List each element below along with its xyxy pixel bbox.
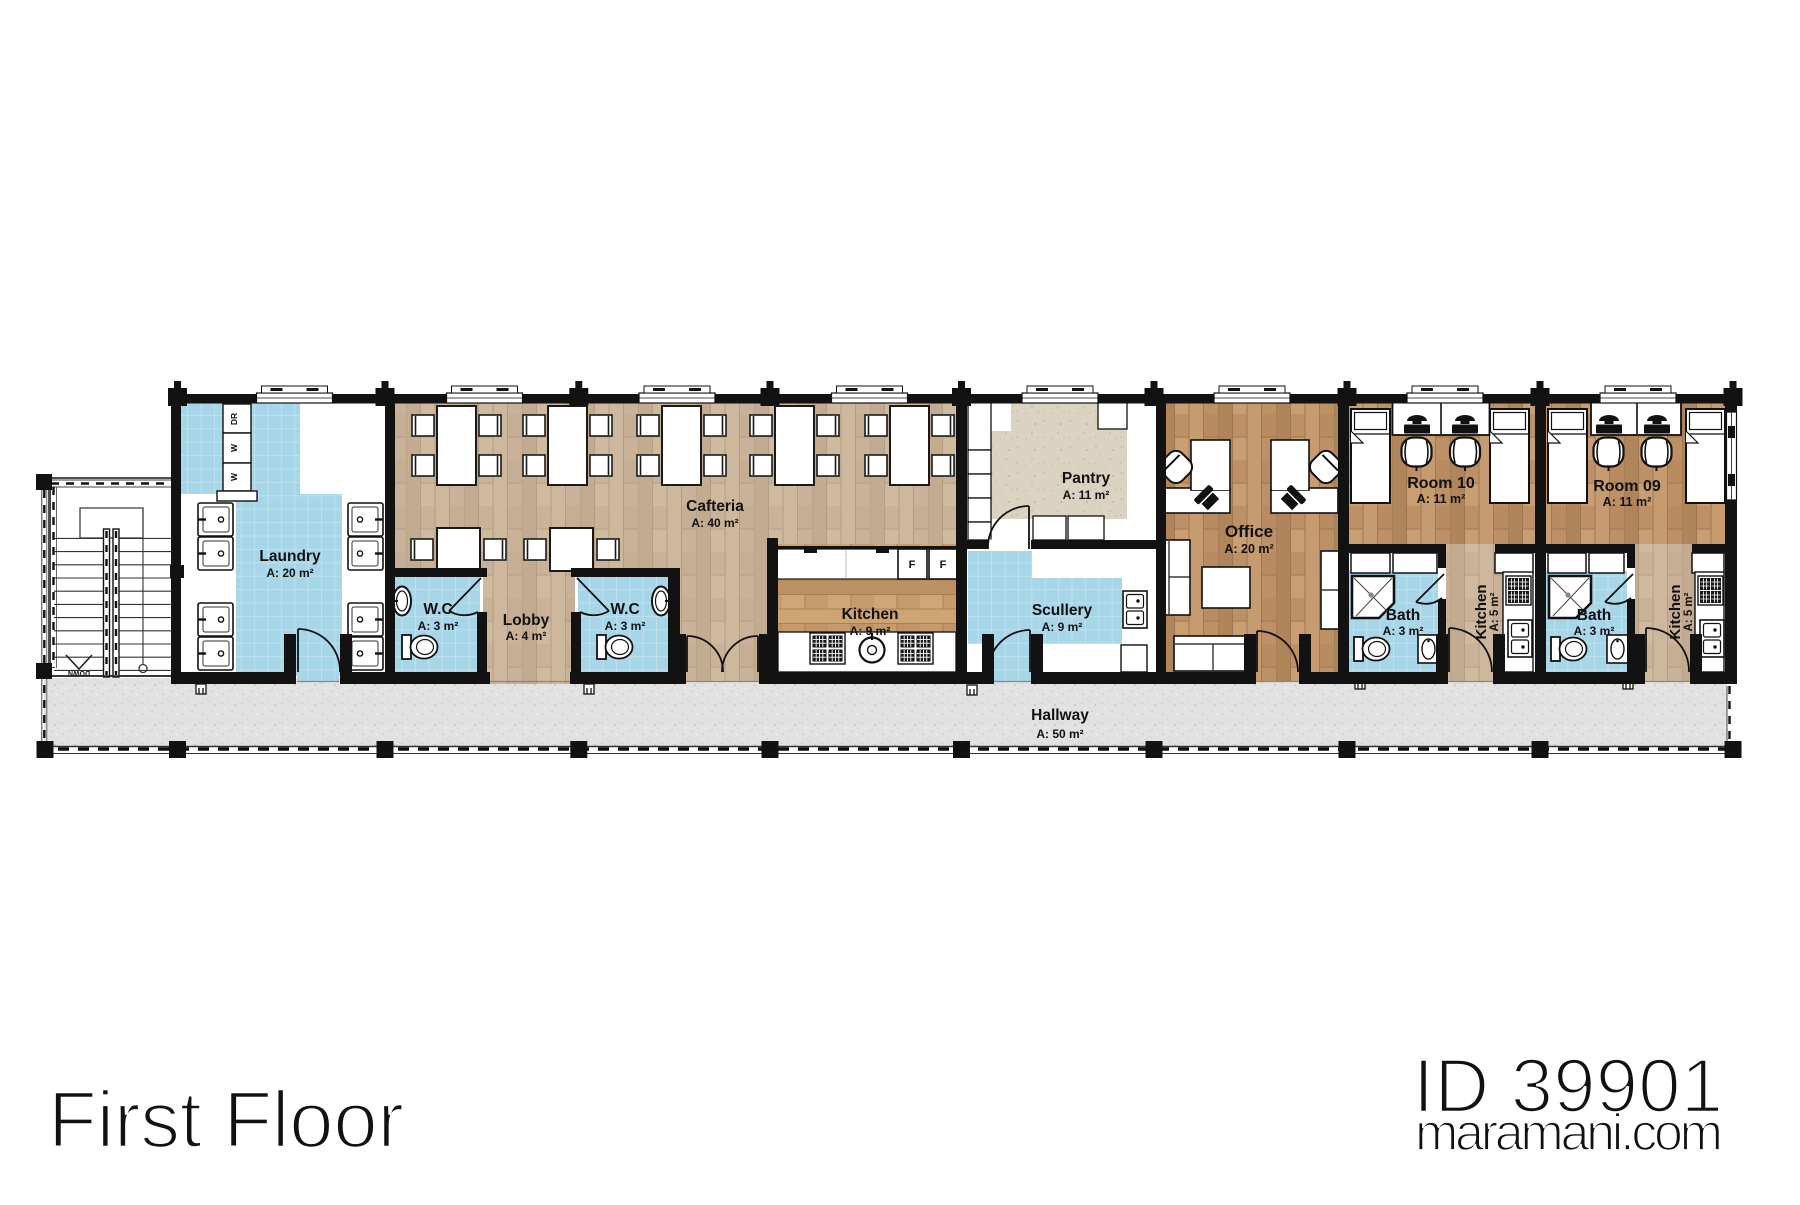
svg-text:F: F: [940, 559, 947, 571]
svg-text:A: 50 m²: A: 50 m²: [1036, 727, 1083, 741]
svg-text:Lobby: Lobby: [503, 612, 550, 629]
svg-text:Pantry: Pantry: [1062, 470, 1111, 487]
svg-text:DOWN: DOWN: [68, 669, 90, 676]
svg-text:F: F: [909, 559, 916, 571]
svg-text:Kitchen: Kitchen: [842, 606, 899, 623]
svg-text:Scullery: Scullery: [1032, 602, 1093, 619]
svg-text:A: 40 m²: A: 40 m²: [691, 516, 738, 530]
svg-text:W.C: W.C: [423, 601, 452, 618]
svg-text:A: 4 m²: A: 4 m²: [506, 629, 547, 643]
svg-text:A: 3 m²: A: 3 m²: [1383, 624, 1424, 638]
svg-text:Laundry: Laundry: [259, 548, 321, 565]
svg-text:A: 5 m²: A: 5 m²: [1489, 592, 1501, 631]
svg-text:A: 20 m²: A: 20 m²: [266, 566, 313, 580]
svg-text:A: 3 m²: A: 3 m²: [1574, 624, 1615, 638]
svg-text:A: 11 m²: A: 11 m²: [1063, 488, 1110, 502]
svg-text:DR: DR: [229, 413, 239, 425]
svg-text:W.C: W.C: [610, 601, 639, 618]
svg-text:Cafteria: Cafteria: [686, 498, 744, 515]
svg-text:A: 5 m²: A: 5 m²: [1683, 592, 1695, 631]
svg-text:A: 11 m²: A: 11 m²: [1603, 495, 1652, 509]
svg-text:A: 3 m²: A: 3 m²: [418, 619, 459, 633]
svg-text:Kitchen: Kitchen: [1473, 584, 1490, 639]
svg-text:A: 20 m²: A: 20 m²: [1224, 542, 1273, 556]
svg-text:Room 09: Room 09: [1593, 478, 1661, 495]
svg-text:Hallway: Hallway: [1031, 707, 1089, 724]
svg-text:Bath: Bath: [1386, 607, 1420, 624]
svg-text:Bath: Bath: [1577, 607, 1611, 624]
svg-text:A: 3 m²: A: 3 m²: [605, 619, 646, 633]
svg-text:maramani.com: maramani.com: [1415, 1104, 1723, 1162]
svg-text:Room 10: Room 10: [1407, 475, 1475, 492]
svg-text:Kitchen: Kitchen: [1667, 584, 1684, 639]
svg-text:Office: Office: [1225, 522, 1273, 541]
svg-text:W: W: [229, 472, 239, 481]
svg-text:First Floor: First Floor: [48, 1075, 404, 1164]
svg-text:W: W: [229, 443, 239, 452]
svg-text:A: 9 m²: A: 9 m²: [850, 624, 891, 638]
svg-text:A: 9 m²: A: 9 m²: [1042, 620, 1083, 634]
svg-text:A: 11 m²: A: 11 m²: [1417, 492, 1466, 506]
